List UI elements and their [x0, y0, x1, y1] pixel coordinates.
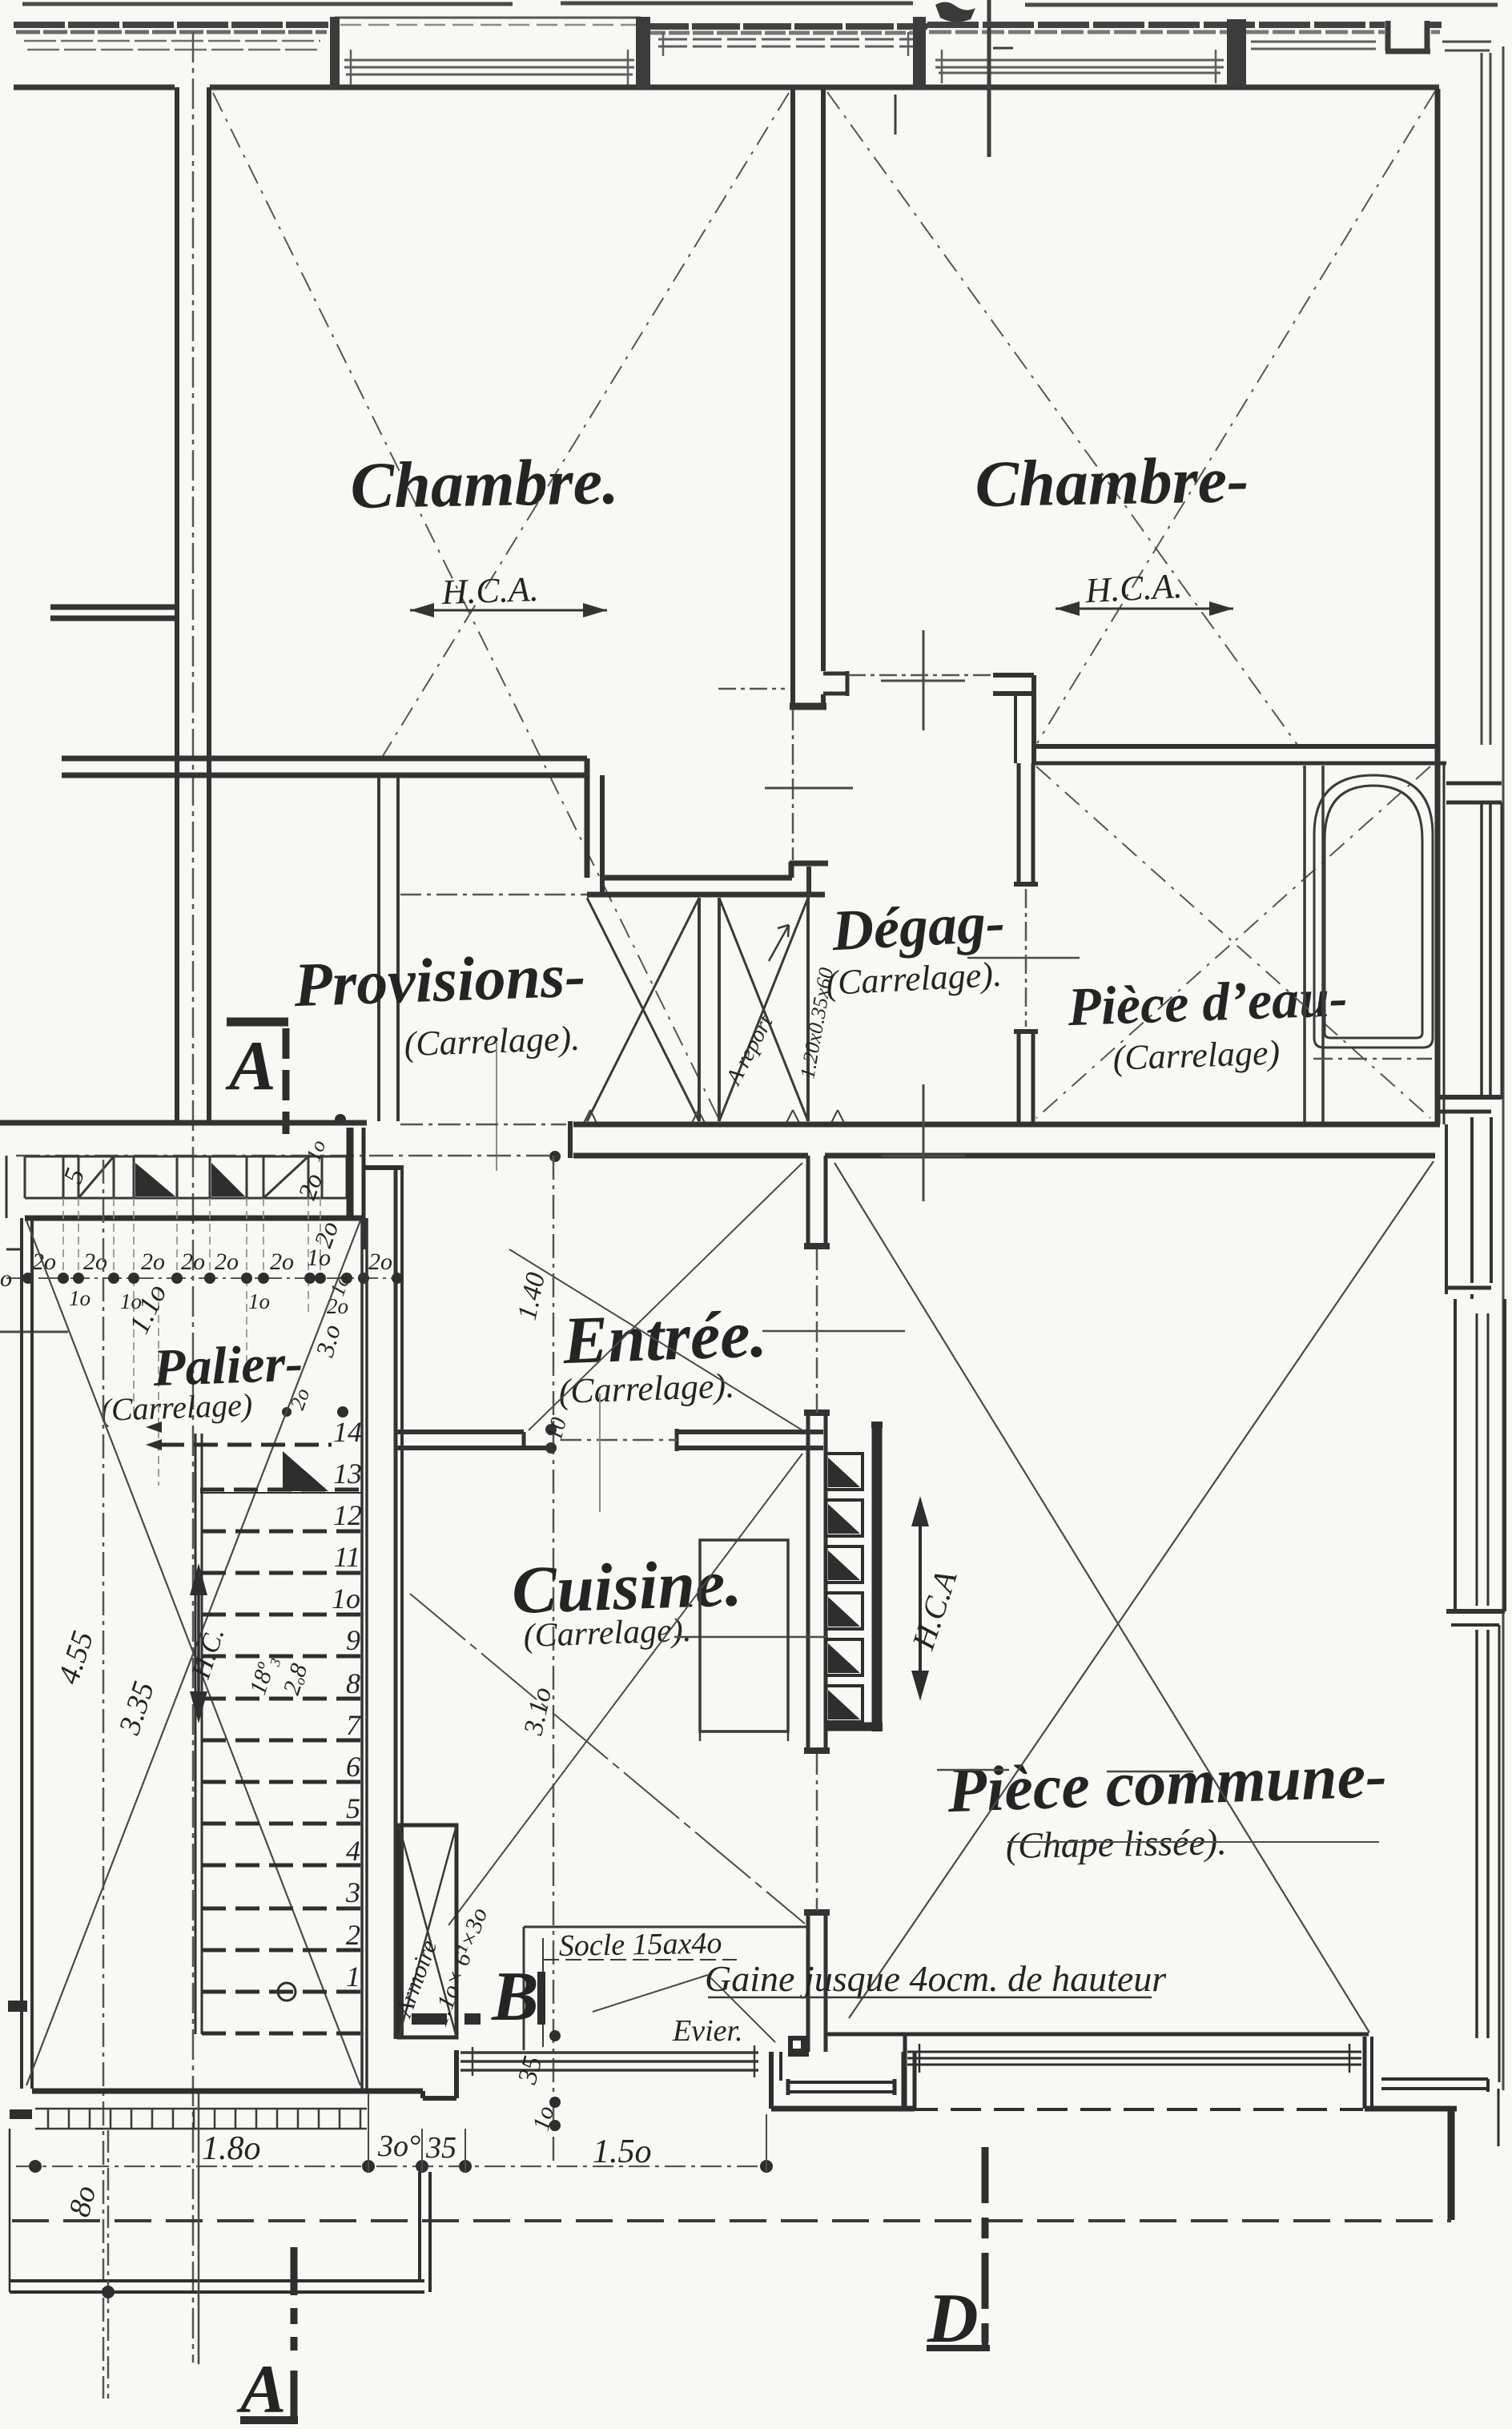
svg-text:12: 12	[333, 1499, 362, 1531]
svg-text:2: 2	[346, 1919, 360, 1951]
svg-text:5: 5	[346, 1792, 360, 1824]
svg-text:13: 13	[333, 1458, 362, 1490]
svg-text:2o: 2o	[270, 1249, 294, 1275]
svg-text:(Carrelage): (Carrelage)	[1112, 1032, 1281, 1077]
svg-text:o: o	[0, 1265, 12, 1292]
svg-text:1: 1	[346, 1960, 360, 1993]
svg-text:B: B	[491, 1958, 539, 2036]
svg-text:Chambre-: Chambre-	[975, 443, 1249, 521]
svg-text:(Carrelage): (Carrelage)	[100, 1386, 253, 1428]
svg-text:A: A	[225, 1027, 276, 1105]
svg-text:2o: 2o	[181, 1249, 205, 1275]
svg-text:Dégag-: Dégag-	[830, 890, 1007, 963]
svg-text:9: 9	[346, 1624, 360, 1656]
svg-text:Entrée.: Entrée.	[561, 1297, 767, 1378]
svg-text:2o: 2o	[368, 1249, 392, 1275]
svg-text:1.5o: 1.5o	[593, 2133, 652, 2170]
svg-text:35: 35	[425, 2131, 456, 2165]
svg-text:2o: 2o	[32, 1249, 56, 1275]
svg-text:1.8o: 1.8o	[202, 2130, 261, 2167]
svg-text:Pièce d’eau-: Pièce d’eau-	[1066, 967, 1349, 1037]
svg-text:Chambre.: Chambre.	[350, 444, 619, 522]
svg-text:Provisions-: Provisions-	[292, 939, 587, 1019]
svg-text:3o°: 3o°	[377, 2129, 420, 2163]
svg-text:Socle 15ax4o: Socle 15ax4o	[558, 1926, 722, 1963]
svg-text:A: A	[236, 2351, 286, 2427]
svg-text:(Carrelage).: (Carrelage).	[404, 1019, 581, 1064]
svg-text:6: 6	[346, 1751, 360, 1783]
svg-text:2o: 2o	[141, 1249, 165, 1275]
svg-text:3: 3	[345, 1876, 360, 1908]
svg-text:(Chape lissée).: (Chape lissée).	[1005, 1821, 1227, 1866]
svg-text:H.C.A.: H.C.A.	[1084, 566, 1183, 610]
svg-text:Gaine jusque 4ocm. de hauteur: Gaine jusque 4ocm. de hauteur	[705, 1958, 1167, 1999]
svg-text:1o: 1o	[69, 1286, 90, 1310]
svg-text:14: 14	[333, 1416, 362, 1448]
svg-text:Evier.: Evier.	[672, 2014, 743, 2048]
svg-text:11: 11	[334, 1541, 360, 1573]
svg-text:4: 4	[346, 1835, 360, 1867]
svg-text:1o: 1o	[332, 1582, 360, 1615]
svg-text:8: 8	[346, 1667, 360, 1699]
svg-text:2o: 2o	[215, 1249, 239, 1275]
svg-text:H.C.A.: H.C.A.	[440, 569, 540, 612]
svg-text:(Carrelage).: (Carrelage).	[523, 1612, 692, 1655]
svg-text:7: 7	[346, 1709, 362, 1741]
svg-text:1o: 1o	[248, 1289, 270, 1313]
